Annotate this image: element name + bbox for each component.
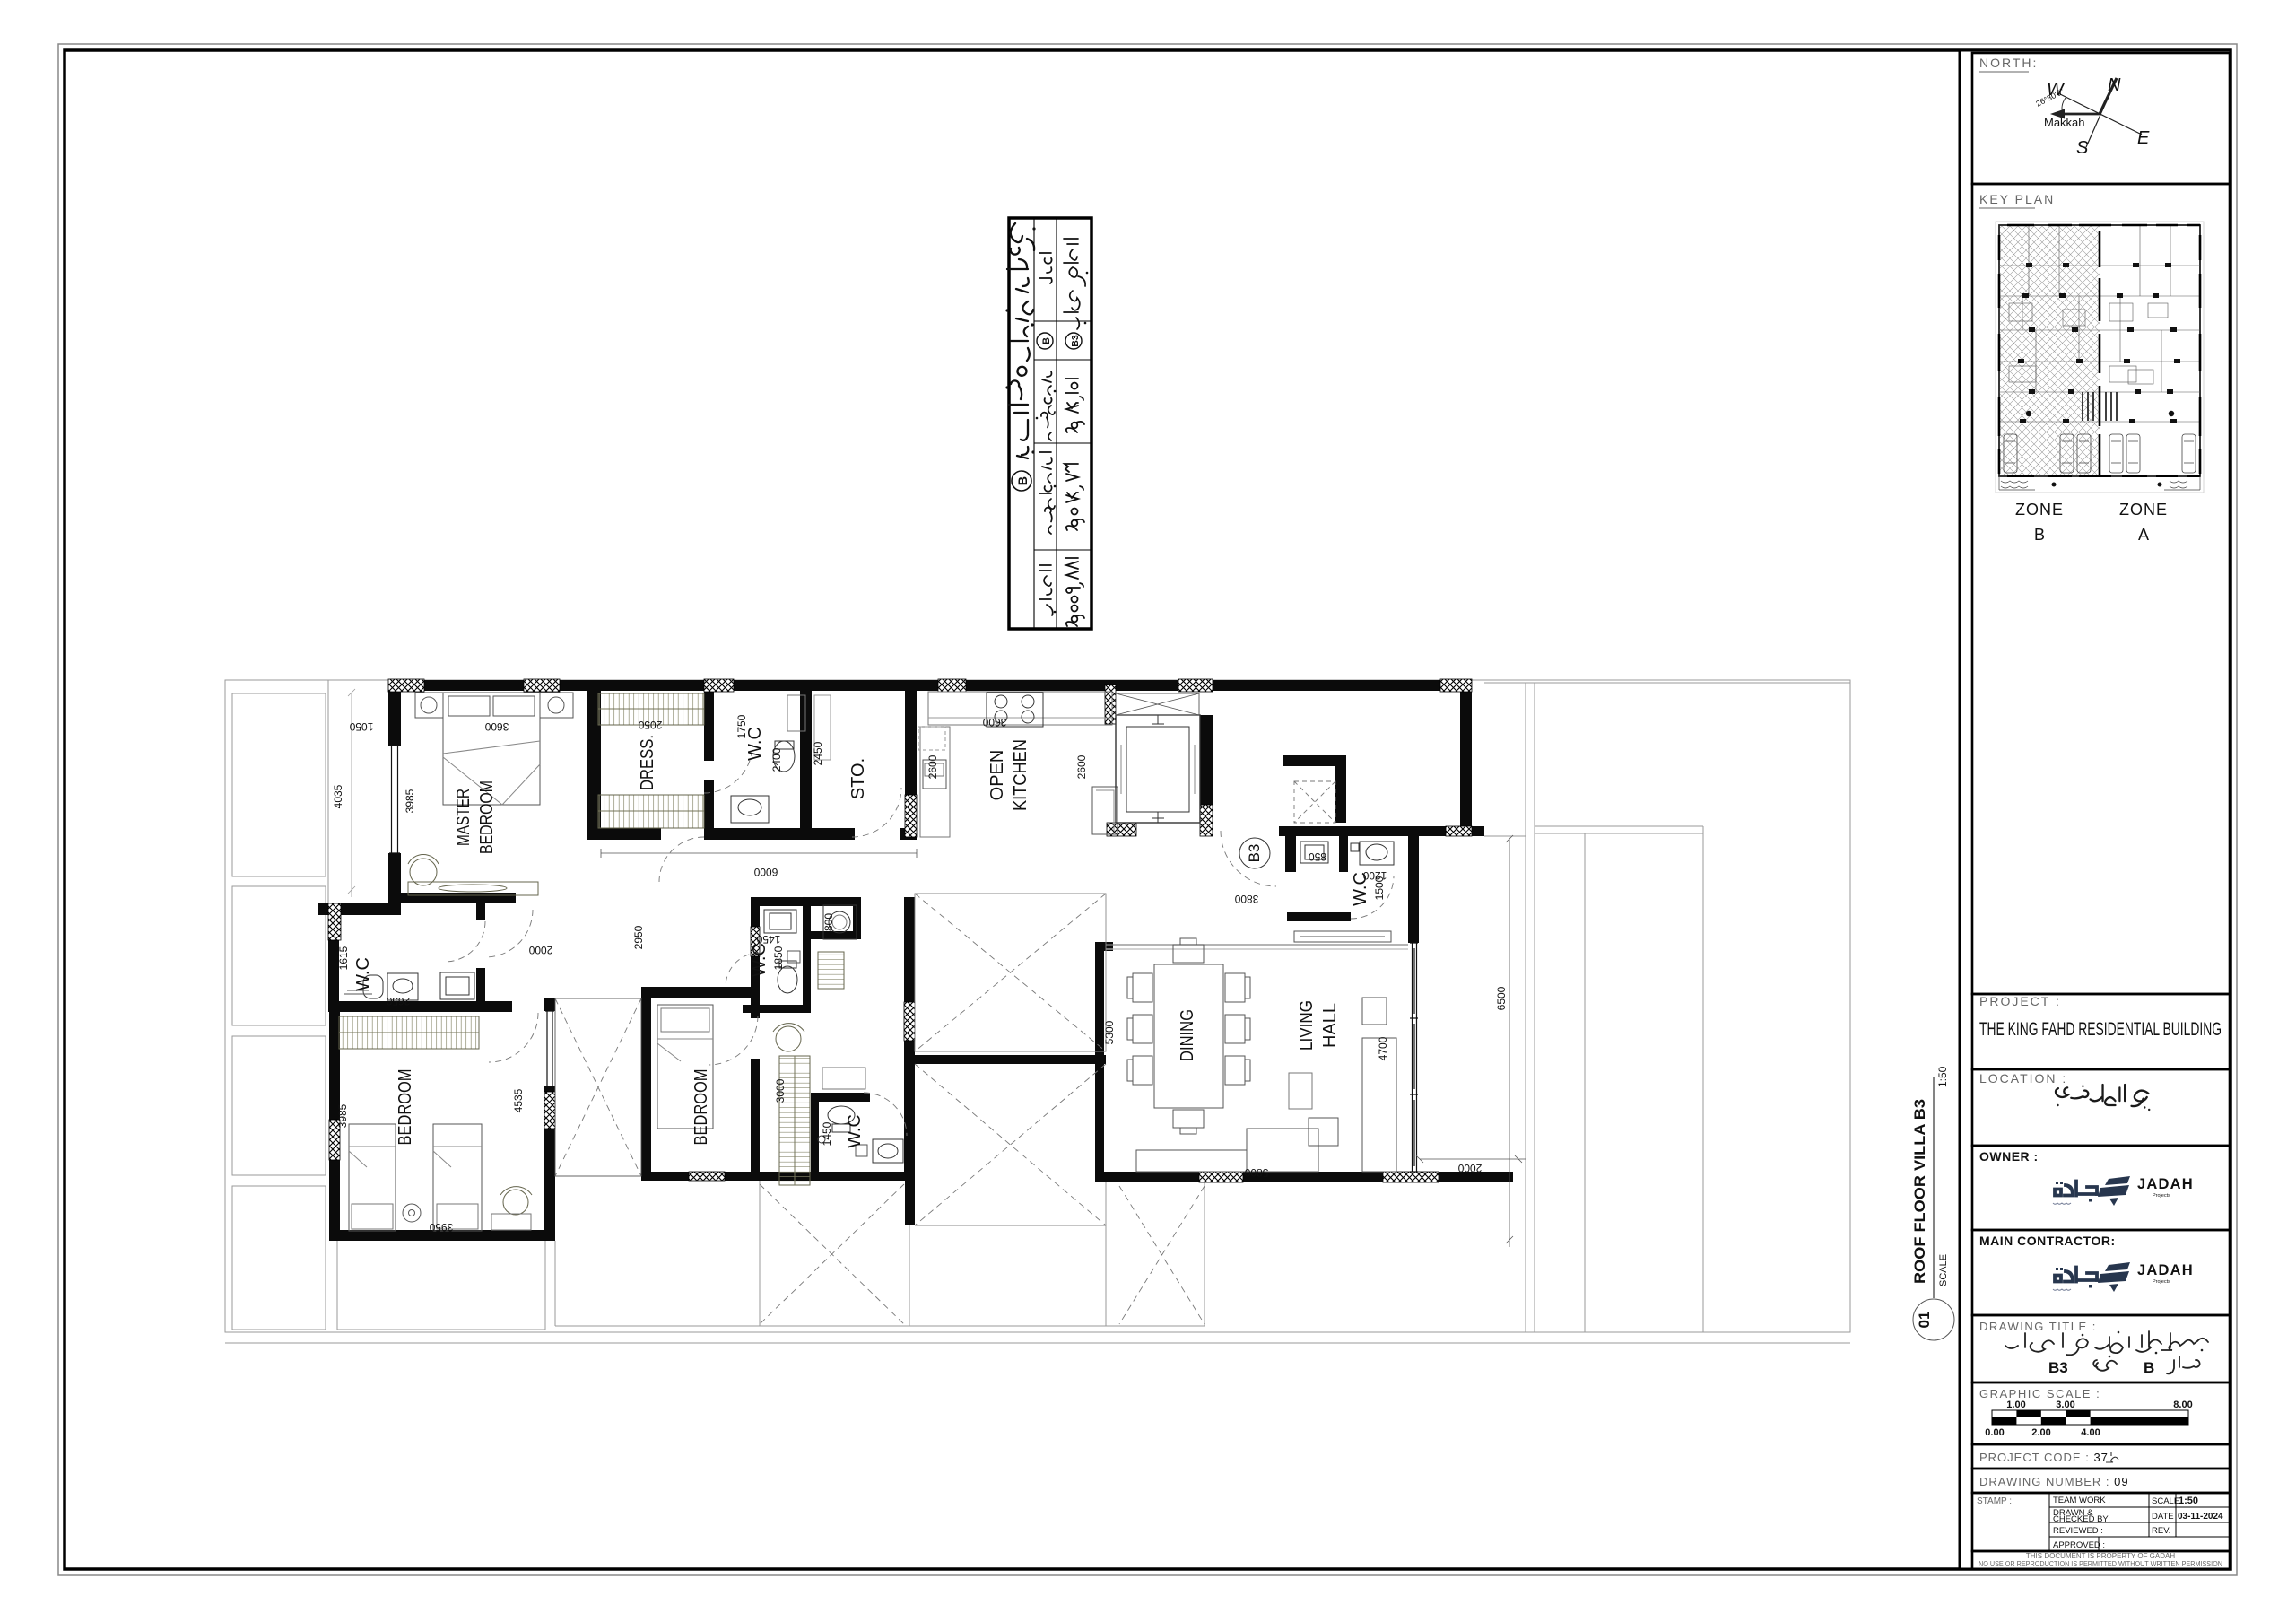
- svg-text:1450: 1450: [756, 933, 780, 946]
- svg-text:APPROVED :: APPROVED :: [2053, 1540, 2105, 1550]
- svg-text:LOCATION :: LOCATION :: [1979, 1071, 2067, 1086]
- svg-text:3800: 3800: [1234, 893, 1258, 905]
- svg-text:DRESS.: DRESS.: [638, 735, 657, 790]
- svg-text:HALL: HALL: [1320, 1003, 1340, 1048]
- svg-text:DINING: DINING: [1178, 1009, 1197, 1061]
- svg-text:1450: 1450: [821, 1121, 833, 1146]
- svg-text:STAMP :: STAMP :: [1977, 1496, 2012, 1506]
- svg-text:4035: 4035: [332, 784, 344, 808]
- svg-text:LIVING: LIVING: [1297, 1000, 1317, 1051]
- svg-text:ZONE: ZONE: [2119, 501, 2168, 519]
- svg-text:NORTH:: NORTH:: [1979, 56, 2038, 70]
- svg-text:B: B: [1041, 337, 1052, 344]
- svg-text:2600: 2600: [1075, 754, 1088, 779]
- svg-text:5800: 5800: [1244, 1166, 1268, 1179]
- svg-text:B3: B3: [1246, 844, 1263, 863]
- svg-text:ROOF FLOOR VILLA B3: ROOF FLOOR VILLA B3: [1911, 1099, 1928, 1284]
- svg-text:1.00: 1.00: [2006, 1400, 2025, 1410]
- svg-text:BEDROOM: BEDROOM: [396, 1069, 415, 1146]
- svg-text:OPEN: OPEN: [987, 750, 1007, 801]
- svg-text:2400: 2400: [770, 747, 783, 772]
- svg-text:1:50: 1:50: [2179, 1496, 2198, 1506]
- svg-text:850: 850: [1309, 850, 1326, 863]
- svg-text:03-11-2024: 03-11-2024: [2178, 1512, 2223, 1522]
- svg-text:4535: 4535: [512, 1088, 525, 1112]
- svg-text:3985: 3985: [336, 1103, 349, 1128]
- svg-text:01: 01: [1916, 1312, 1933, 1329]
- svg-text:W.C: W.C: [353, 957, 373, 991]
- svg-text:6000: 6000: [753, 866, 778, 878]
- svg-text:0.00: 0.00: [1985, 1427, 2004, 1438]
- svg-text:3950: 3950: [429, 1221, 453, 1234]
- svg-text:S: S: [2076, 138, 2089, 158]
- svg-text:3600: 3600: [484, 720, 509, 733]
- svg-text:REV.: REV.: [2152, 1526, 2170, 1536]
- svg-text:4700: 4700: [1377, 1036, 1389, 1060]
- svg-text:KEY PLAN: KEY PLAN: [1979, 192, 2055, 206]
- svg-text:BEDROOM: BEDROOM: [691, 1069, 711, 1146]
- svg-text:2650: 2650: [386, 995, 410, 1007]
- svg-text:B: B: [1015, 476, 1030, 485]
- svg-text:2450: 2450: [812, 741, 824, 765]
- svg-text:W.C: W.C: [845, 1114, 865, 1148]
- svg-text:PROJECT :: PROJECT :: [1979, 994, 2061, 1008]
- svg-text:W.C: W.C: [745, 727, 765, 761]
- svg-text:N: N: [2108, 75, 2121, 95]
- svg-text:B: B: [2034, 526, 2045, 544]
- svg-text:TEAM WORK :: TEAM WORK :: [2053, 1496, 2110, 1505]
- svg-text:1050: 1050: [349, 720, 373, 733]
- svg-text:SCALE: SCALE: [2152, 1496, 2179, 1506]
- svg-text:8.00: 8.00: [2173, 1400, 2192, 1410]
- svg-text:ZONE: ZONE: [2015, 501, 2064, 519]
- svg-text:1750: 1750: [735, 714, 748, 738]
- svg-text:PROJECT CODE : 37: PROJECT CODE : 37: [1979, 1451, 2109, 1464]
- svg-text:5300: 5300: [1103, 1020, 1116, 1044]
- svg-text:W.C: W.C: [750, 943, 770, 977]
- svg-text:CHECKED BY:: CHECKED BY:: [2053, 1514, 2110, 1524]
- svg-text:REVIEWED :: REVIEWED :: [2053, 1526, 2103, 1536]
- svg-text:THIS DOCUMENT IS PROPERTY OF G: THIS DOCUMENT IS PROPERTY OF GADAH: [2026, 1552, 2175, 1560]
- svg-text:1615: 1615: [337, 946, 350, 970]
- svg-text:2950: 2950: [632, 925, 645, 949]
- svg-text:800: 800: [822, 913, 835, 931]
- svg-text:E: E: [2137, 128, 2150, 148]
- svg-text:1500: 1500: [1373, 876, 1386, 900]
- svg-text:B: B: [2144, 1359, 2154, 1376]
- svg-text:3985: 3985: [404, 789, 416, 813]
- svg-text:B3: B3: [2048, 1359, 2068, 1376]
- svg-text:2000: 2000: [528, 944, 552, 956]
- svg-text:BEDROOM: BEDROOM: [477, 780, 497, 854]
- svg-text:2.00: 2.00: [2031, 1427, 2050, 1438]
- svg-text:A: A: [2138, 526, 2149, 544]
- svg-text:2050: 2050: [638, 719, 662, 731]
- svg-text:3000: 3000: [774, 1078, 787, 1103]
- svg-text:KITCHEN: KITCHEN: [1011, 739, 1031, 811]
- svg-text:NO USE OR REPRODUCTION IS PERM: NO USE OR REPRODUCTION IS PERMITTED WITH…: [1979, 1560, 2222, 1568]
- svg-text:B3: B3: [1070, 335, 1081, 347]
- svg-text:THE KING FAHD RESIDENTIAL BUIL: THE KING FAHD RESIDENTIAL BUILDING: [1979, 1019, 2222, 1040]
- svg-text:DATE: DATE: [2152, 1512, 2174, 1522]
- svg-text:DRAWING TITLE :: DRAWING TITLE :: [1979, 1320, 2097, 1333]
- svg-text:MASTER: MASTER: [454, 789, 474, 846]
- svg-text:1:50: 1:50: [1936, 1066, 1949, 1087]
- svg-text:DRAWING NUMBER : 09: DRAWING NUMBER : 09: [1979, 1475, 2129, 1488]
- svg-text:3.00: 3.00: [2056, 1400, 2074, 1410]
- svg-text:3600: 3600: [982, 716, 1006, 728]
- svg-text:4.00: 4.00: [2081, 1427, 2100, 1438]
- svg-text:SCALE: SCALE: [1938, 1254, 1949, 1286]
- svg-text:Makkah: Makkah: [2044, 116, 2085, 129]
- svg-text:OWNER :: OWNER :: [1979, 1149, 2039, 1164]
- svg-text:1850: 1850: [772, 946, 785, 970]
- svg-text:STO.: STO.: [848, 758, 868, 799]
- svg-text:2000: 2000: [1457, 1162, 1482, 1174]
- svg-text:6500: 6500: [1495, 986, 1508, 1010]
- svg-text:2600: 2600: [926, 754, 939, 779]
- svg-text:GRAPHIC SCALE :: GRAPHIC SCALE :: [1979, 1387, 2100, 1400]
- svg-text:MAIN CONTRACTOR:: MAIN CONTRACTOR:: [1979, 1234, 2116, 1248]
